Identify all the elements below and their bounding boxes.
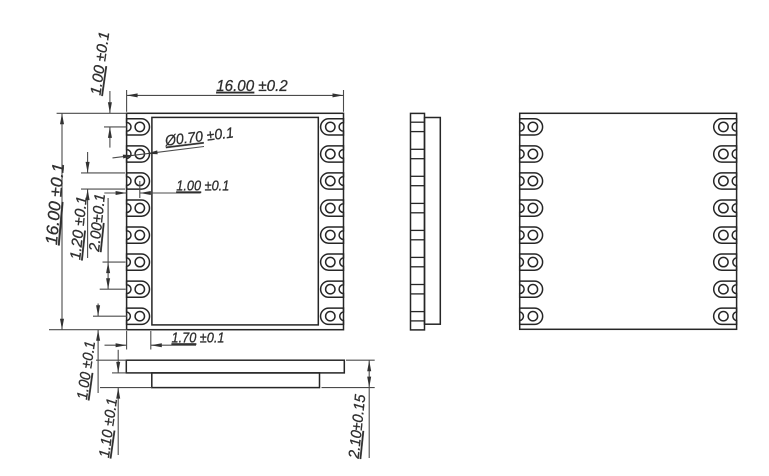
svg-text:16.00 ±0.2: 16.00 ±0.2 bbox=[216, 78, 288, 95]
svg-text:1.70 ±0.1: 1.70 ±0.1 bbox=[172, 330, 225, 346]
svg-text:1.00 ±0.1: 1.00 ±0.1 bbox=[176, 179, 229, 195]
